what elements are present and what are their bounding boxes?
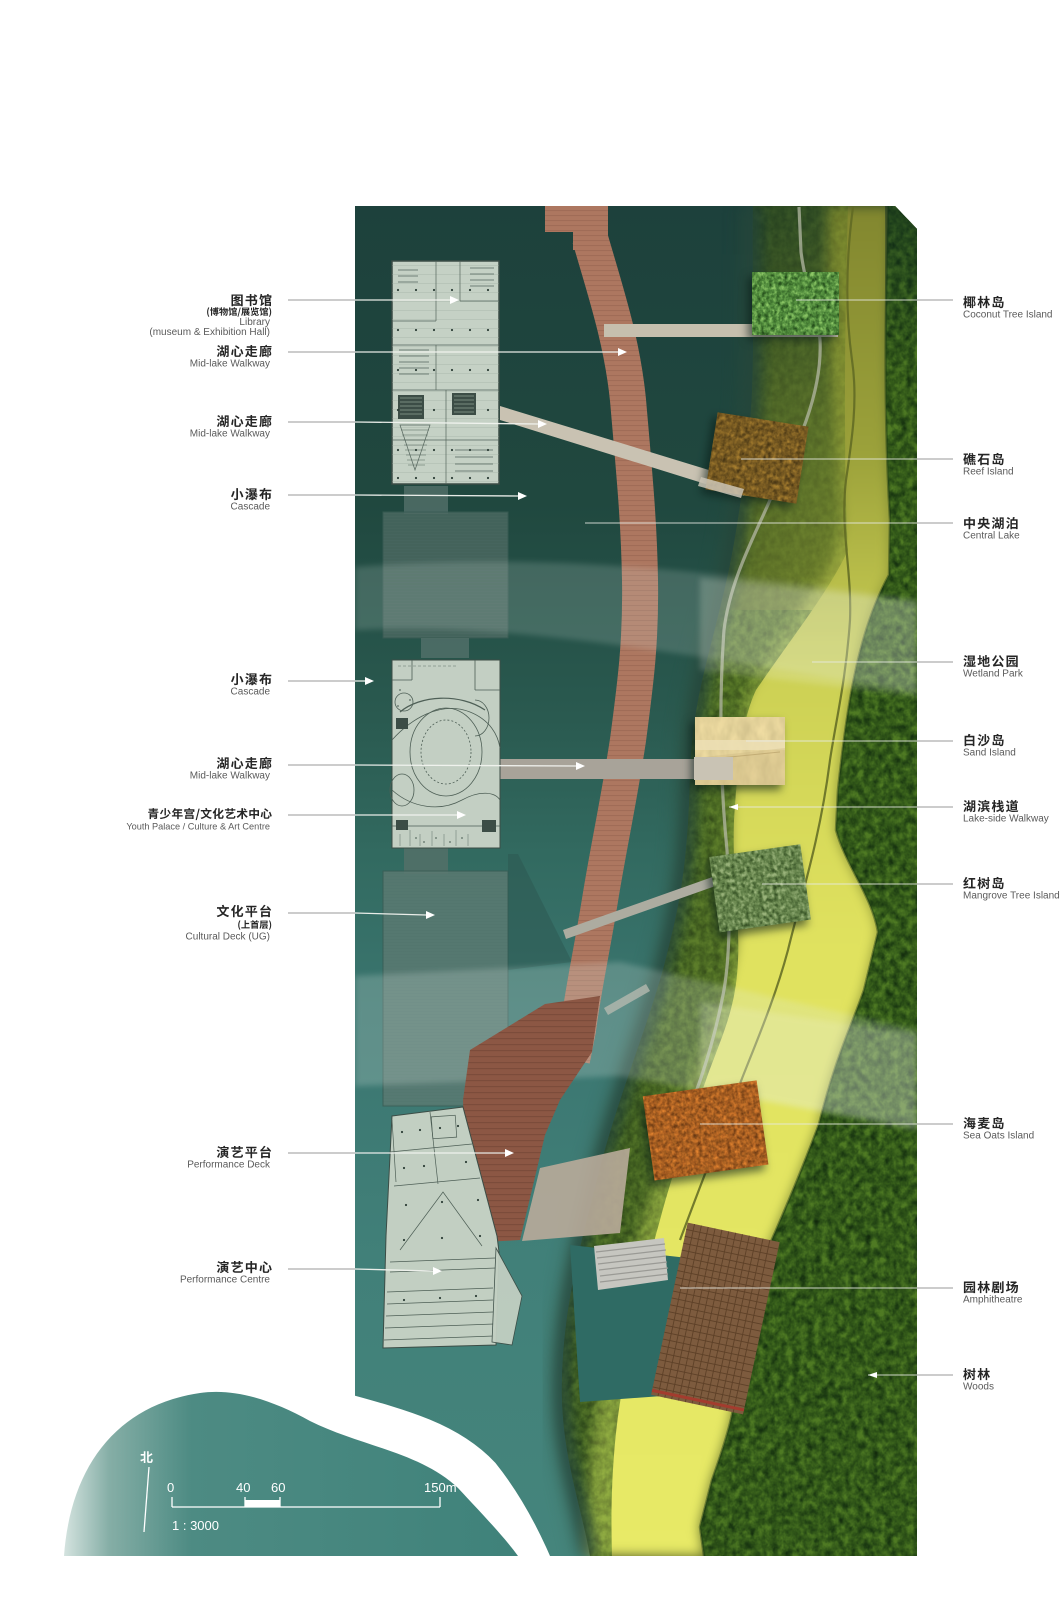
svg-text:Performance Centre: Performance Centre bbox=[180, 1275, 270, 1286]
svg-text:Lake-side Walkway: Lake-side Walkway bbox=[963, 814, 1049, 825]
svg-text:40: 40 bbox=[236, 1480, 250, 1495]
svg-text:0: 0 bbox=[167, 1480, 174, 1495]
svg-text:Woods: Woods bbox=[963, 1382, 994, 1393]
svg-text:60: 60 bbox=[271, 1480, 285, 1495]
svg-text:Sea Oats Island: Sea Oats Island bbox=[963, 1131, 1034, 1142]
svg-text:Mid-lake Walkway: Mid-lake Walkway bbox=[190, 359, 270, 370]
svg-text:1 : 3000: 1 : 3000 bbox=[172, 1518, 219, 1533]
svg-text:Coconut Tree Island: Coconut Tree Island bbox=[963, 310, 1053, 321]
svg-text:Mid-lake Walkway: Mid-lake Walkway bbox=[190, 429, 270, 440]
svg-text:Cascade: Cascade bbox=[231, 502, 271, 513]
svg-text:150m: 150m bbox=[424, 1480, 457, 1495]
svg-text:Mangrove Tree Island: Mangrove Tree Island bbox=[963, 891, 1060, 902]
svg-text:Central Lake: Central Lake bbox=[963, 531, 1020, 542]
svg-text:(museum & Exhibition Hall): (museum & Exhibition Hall) bbox=[149, 327, 270, 338]
svg-text:Wetland Park: Wetland Park bbox=[963, 669, 1024, 680]
svg-text:Cultural Deck (UG): Cultural Deck (UG) bbox=[186, 932, 270, 943]
svg-text:Performance Deck: Performance Deck bbox=[187, 1160, 271, 1171]
svg-text:Cascade: Cascade bbox=[231, 687, 271, 698]
svg-text:Sand Island: Sand Island bbox=[963, 748, 1016, 759]
svg-text:Amphitheatre: Amphitheatre bbox=[963, 1295, 1023, 1306]
svg-text:Youth Palace / Culture & Art C: Youth Palace / Culture & Art Centre bbox=[126, 822, 270, 832]
svg-text:Mid-lake Walkway: Mid-lake Walkway bbox=[190, 771, 270, 782]
svg-text:Reef Island: Reef Island bbox=[963, 467, 1014, 478]
